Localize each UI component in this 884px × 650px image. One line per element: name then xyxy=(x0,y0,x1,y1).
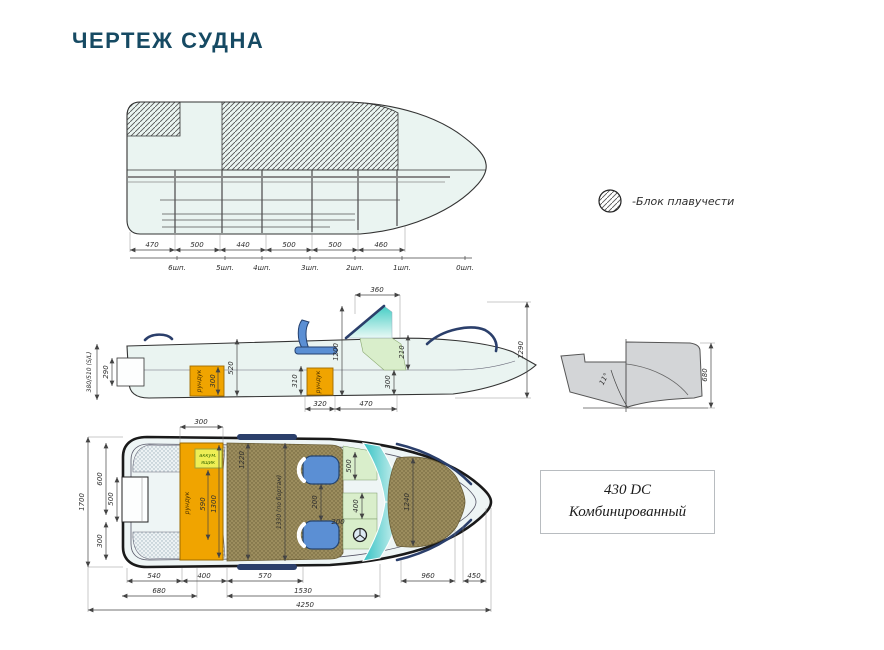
locker-aft-label: рундук xyxy=(196,369,203,393)
dim-300-top: 300 xyxy=(194,418,208,426)
dim-470: 470 xyxy=(359,400,373,408)
dim-1300: 1300 xyxy=(210,495,218,513)
dim-locker-height: 300 xyxy=(209,374,217,388)
dim-300-left: 300 xyxy=(96,534,104,548)
dim-450: 450 xyxy=(467,572,481,580)
plan-view: аккум. ящик рундук 590 1300 1220 200 133… xyxy=(75,418,510,628)
frame-2: 2шп. xyxy=(346,264,364,272)
top-structural-view: 470 500 440 500 500 460 6шп. 5шп. 4шп. 3… xyxy=(100,82,520,282)
frame-4: 4шп. xyxy=(253,264,271,272)
dim-520: 520 xyxy=(227,361,235,375)
dim-4250: 4250 xyxy=(296,601,314,609)
locker-console-label: рундук xyxy=(315,370,322,394)
buoyancy-block-bow xyxy=(222,102,398,170)
dim-500-motorwell: 500 xyxy=(107,492,115,506)
dim-transom-height: 380/510 (S/L) xyxy=(86,352,93,393)
dim-500c: 500 xyxy=(328,241,342,249)
dim-300: 300 xyxy=(384,375,392,389)
dim-200-helm: 200 xyxy=(331,518,345,526)
dim-440: 440 xyxy=(236,241,250,249)
dim-680: 680 xyxy=(701,368,709,382)
steering-wheel xyxy=(354,529,367,542)
legend: -Блок плавучести xyxy=(597,188,734,214)
side-view: рундук 300 рундук 380/510 (S/L) 290 520 … xyxy=(75,282,545,422)
stern-grab-rail xyxy=(145,335,172,340)
motor-well xyxy=(122,477,148,522)
dim-310: 310 xyxy=(291,374,299,388)
frame-1: 1шп. xyxy=(393,264,411,272)
frame-5: 5шп. xyxy=(216,264,234,272)
dim-470: 470 xyxy=(145,241,159,249)
dim-1530: 1530 xyxy=(294,587,312,595)
dim-1220: 1220 xyxy=(238,451,246,469)
dim-500-seat: 500 xyxy=(345,459,353,473)
dim-400: 400 xyxy=(352,499,360,513)
dim-1200: 1200 xyxy=(332,343,340,361)
dim-290: 290 xyxy=(102,365,110,379)
battery-label-2: ящик xyxy=(201,460,215,466)
dim-1290: 1290 xyxy=(517,341,525,359)
seat-port xyxy=(299,456,339,484)
dim-1330: 1330 (по бортам) xyxy=(276,475,283,529)
helm-seat-side xyxy=(295,320,337,354)
buoyancy-block-stern xyxy=(127,102,180,136)
model-box: 430 DC Комбинированный xyxy=(540,470,715,534)
dim-210: 210 xyxy=(398,345,406,359)
dim-460: 460 xyxy=(374,241,388,249)
dim-590: 590 xyxy=(199,497,207,511)
page-title: ЧЕРТЕЖ СУДНА xyxy=(72,28,264,54)
dim-200-seats: 200 xyxy=(311,495,319,509)
transom-half-section xyxy=(626,342,702,407)
gunwale-pad-starboard xyxy=(237,564,297,570)
dim-680b: 680 xyxy=(152,587,166,595)
transom-section-view: 11° 680 xyxy=(548,312,723,417)
battery-label-1: аккум. xyxy=(199,453,216,459)
midship-half-section xyxy=(561,354,626,407)
dim-320: 320 xyxy=(313,400,327,408)
console-step xyxy=(343,493,377,519)
dim-570: 570 xyxy=(258,572,272,580)
legend-label: -Блок плавучести xyxy=(632,195,734,208)
frame-0: 0шп. xyxy=(456,264,474,272)
plan-left-dimensions: 1700 600 300 500 xyxy=(78,437,123,567)
buoyancy-hatch-icon xyxy=(597,188,623,214)
dim-360: 360 xyxy=(370,286,384,294)
dim-1240: 1240 xyxy=(403,493,411,511)
frame-6: 6шп. xyxy=(168,264,186,272)
dim-600: 600 xyxy=(96,472,104,486)
dim-960: 960 xyxy=(421,572,435,580)
dim-540: 540 xyxy=(147,572,161,580)
dim-500b: 500 xyxy=(282,241,296,249)
model-type: Комбинированный xyxy=(569,502,686,524)
locker-plan-label: рундук xyxy=(184,491,191,515)
frame-3: 3шп. xyxy=(301,264,319,272)
drawing-page: ЧЕРТЕЖ СУДНА 470 500 440 xyxy=(0,0,884,650)
model-name: 430 DC xyxy=(604,480,651,502)
dim-400b: 400 xyxy=(197,572,211,580)
transom-bracket xyxy=(117,358,144,386)
dim-500a: 500 xyxy=(190,241,204,249)
gunwale-pad-port xyxy=(237,434,297,440)
dim-1700: 1700 xyxy=(78,493,86,511)
